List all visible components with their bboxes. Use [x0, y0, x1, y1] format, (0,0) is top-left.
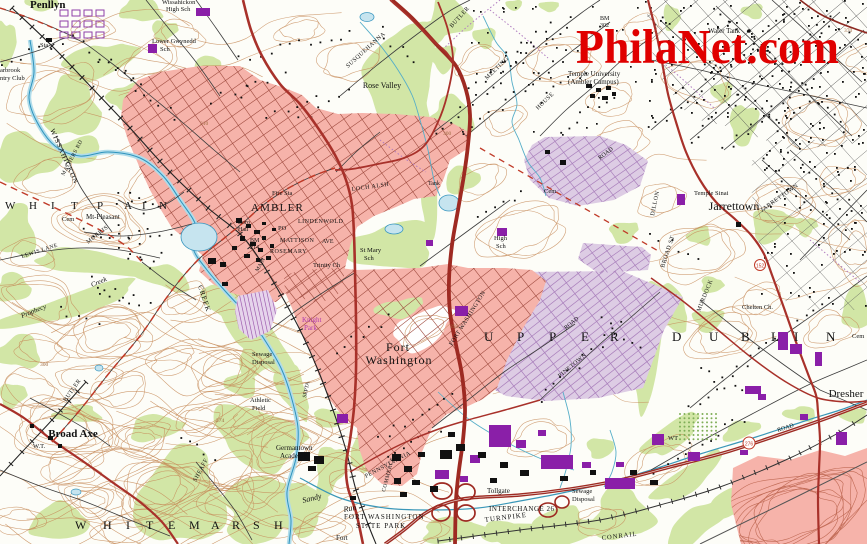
svg-text:N: N: [826, 329, 836, 344]
svg-text:Mt-Pleasant: Mt-Pleasant: [86, 213, 120, 221]
svg-text:Cem: Cem: [852, 333, 864, 340]
svg-text:Sch: Sch: [364, 255, 375, 262]
svg-text:High Sch: High Sch: [166, 6, 191, 13]
svg-text:Fort: Fort: [336, 534, 348, 542]
svg-text:WT: WT: [668, 435, 678, 442]
svg-text:D: D: [672, 329, 681, 344]
svg-text:Sta: Sta: [40, 42, 48, 49]
svg-text:Park: Park: [304, 324, 317, 332]
svg-text:ntry Club: ntry Club: [0, 75, 25, 82]
svg-text:H: H: [29, 200, 37, 212]
svg-text:AVE: AVE: [322, 239, 334, 245]
svg-text:BM: BM: [600, 16, 610, 22]
svg-text:Academy: Academy: [280, 452, 307, 460]
svg-text:PO: PO: [278, 225, 287, 232]
svg-text:U: U: [709, 329, 719, 344]
svg-text:St Mary: St Mary: [360, 247, 382, 254]
svg-text:Dresher: Dresher: [829, 388, 864, 400]
svg-text:Temple Sinai: Temple Sinai: [694, 190, 729, 197]
svg-text:Water Tank: Water Tank: [708, 27, 741, 35]
svg-text:Sch: Sch: [160, 46, 171, 53]
svg-text:Boro: Boro: [238, 220, 250, 226]
svg-text:R: R: [232, 518, 240, 532]
svg-text:M: M: [189, 518, 200, 532]
svg-text:274: 274: [216, 418, 225, 424]
svg-text:152: 152: [756, 264, 765, 270]
svg-text:Field: Field: [252, 405, 266, 412]
svg-text:L: L: [771, 329, 779, 344]
svg-text:214: 214: [250, 245, 259, 251]
svg-text:A: A: [124, 200, 132, 212]
svg-text:210: 210: [200, 121, 209, 127]
svg-text:W: W: [5, 200, 16, 212]
svg-text:W.T.: W.T.: [33, 443, 46, 450]
svg-text:300: 300: [443, 131, 452, 137]
svg-text:Sewage: Sewage: [252, 351, 272, 358]
svg-text:A: A: [211, 518, 220, 532]
svg-text:302: 302: [600, 23, 609, 29]
svg-text:370: 370: [844, 28, 853, 34]
svg-text:B: B: [741, 329, 750, 344]
svg-text:(Ambler Campus): (Ambler Campus): [568, 78, 619, 86]
svg-text:Penllyn: Penllyn: [30, 0, 65, 11]
svg-text:Hall: Hall: [238, 227, 249, 233]
svg-text:P: P: [517, 329, 524, 344]
svg-text:P: P: [97, 200, 103, 212]
svg-text:Lower Gwynedd: Lower Gwynedd: [152, 38, 197, 45]
svg-text:LINDENWOLD: LINDENWOLD: [298, 219, 343, 225]
svg-text:MATTISON: MATTISON: [280, 238, 315, 244]
svg-text:W: W: [75, 518, 87, 532]
svg-text:Jarrettown: Jarrettown: [709, 199, 760, 213]
svg-text:Fort: Fort: [386, 340, 410, 354]
svg-text:Germantown: Germantown: [276, 444, 313, 452]
svg-text:Disposal: Disposal: [572, 496, 595, 503]
svg-text:Trinity Ch: Trinity Ch: [313, 262, 341, 269]
svg-text:E: E: [581, 329, 589, 344]
svg-text:I: I: [126, 518, 130, 532]
svg-text:FORT WASHINGTON: FORT WASHINGTON: [344, 513, 425, 521]
svg-text:S: S: [253, 518, 260, 532]
svg-text:High: High: [494, 235, 508, 242]
svg-text:P: P: [549, 329, 556, 344]
svg-text:Chelten Ch.: Chelten Ch.: [742, 304, 773, 311]
svg-text:STATE PARK: STATE PARK: [356, 522, 406, 530]
svg-text:R: R: [610, 329, 619, 344]
svg-text:AMBLER: AMBLER: [251, 202, 304, 214]
svg-text:arbrook: arbrook: [0, 67, 21, 74]
svg-text:Fire Sta: Fire Sta: [272, 190, 293, 197]
svg-text:ROSEMARY: ROSEMARY: [270, 249, 307, 255]
svg-text:Temple University: Temple University: [568, 70, 621, 78]
svg-text:Tank: Tank: [428, 181, 440, 187]
svg-text:Broad Axe: Broad Axe: [48, 428, 98, 440]
svg-text:Tollgate: Tollgate: [487, 487, 510, 495]
svg-text:Washington: Washington: [365, 353, 432, 367]
svg-text:BM: BM: [250, 238, 260, 244]
svg-text:300: 300: [40, 362, 49, 368]
svg-text:I: I: [142, 200, 146, 212]
svg-text:Cem: Cem: [62, 216, 74, 223]
svg-text:Rose Valley: Rose Valley: [363, 81, 401, 90]
svg-text:295: 295: [450, 324, 459, 330]
svg-text:Sewage: Sewage: [572, 488, 592, 495]
svg-text:U: U: [484, 329, 494, 344]
svg-text:E: E: [168, 518, 175, 532]
svg-text:Sch: Sch: [496, 243, 507, 250]
svg-text:Cem: Cem: [544, 188, 556, 195]
svg-text:I: I: [794, 329, 798, 344]
svg-text:Knight: Knight: [302, 316, 322, 324]
svg-text:N: N: [159, 200, 167, 212]
svg-text:H: H: [274, 518, 283, 532]
svg-text:Athletic: Athletic: [250, 397, 271, 404]
svg-text:276: 276: [745, 442, 754, 448]
svg-text:I: I: [51, 200, 55, 212]
svg-text:Disposal: Disposal: [252, 359, 275, 366]
svg-text:T: T: [71, 200, 78, 212]
svg-text:T: T: [146, 518, 154, 532]
svg-text:H: H: [103, 518, 112, 532]
